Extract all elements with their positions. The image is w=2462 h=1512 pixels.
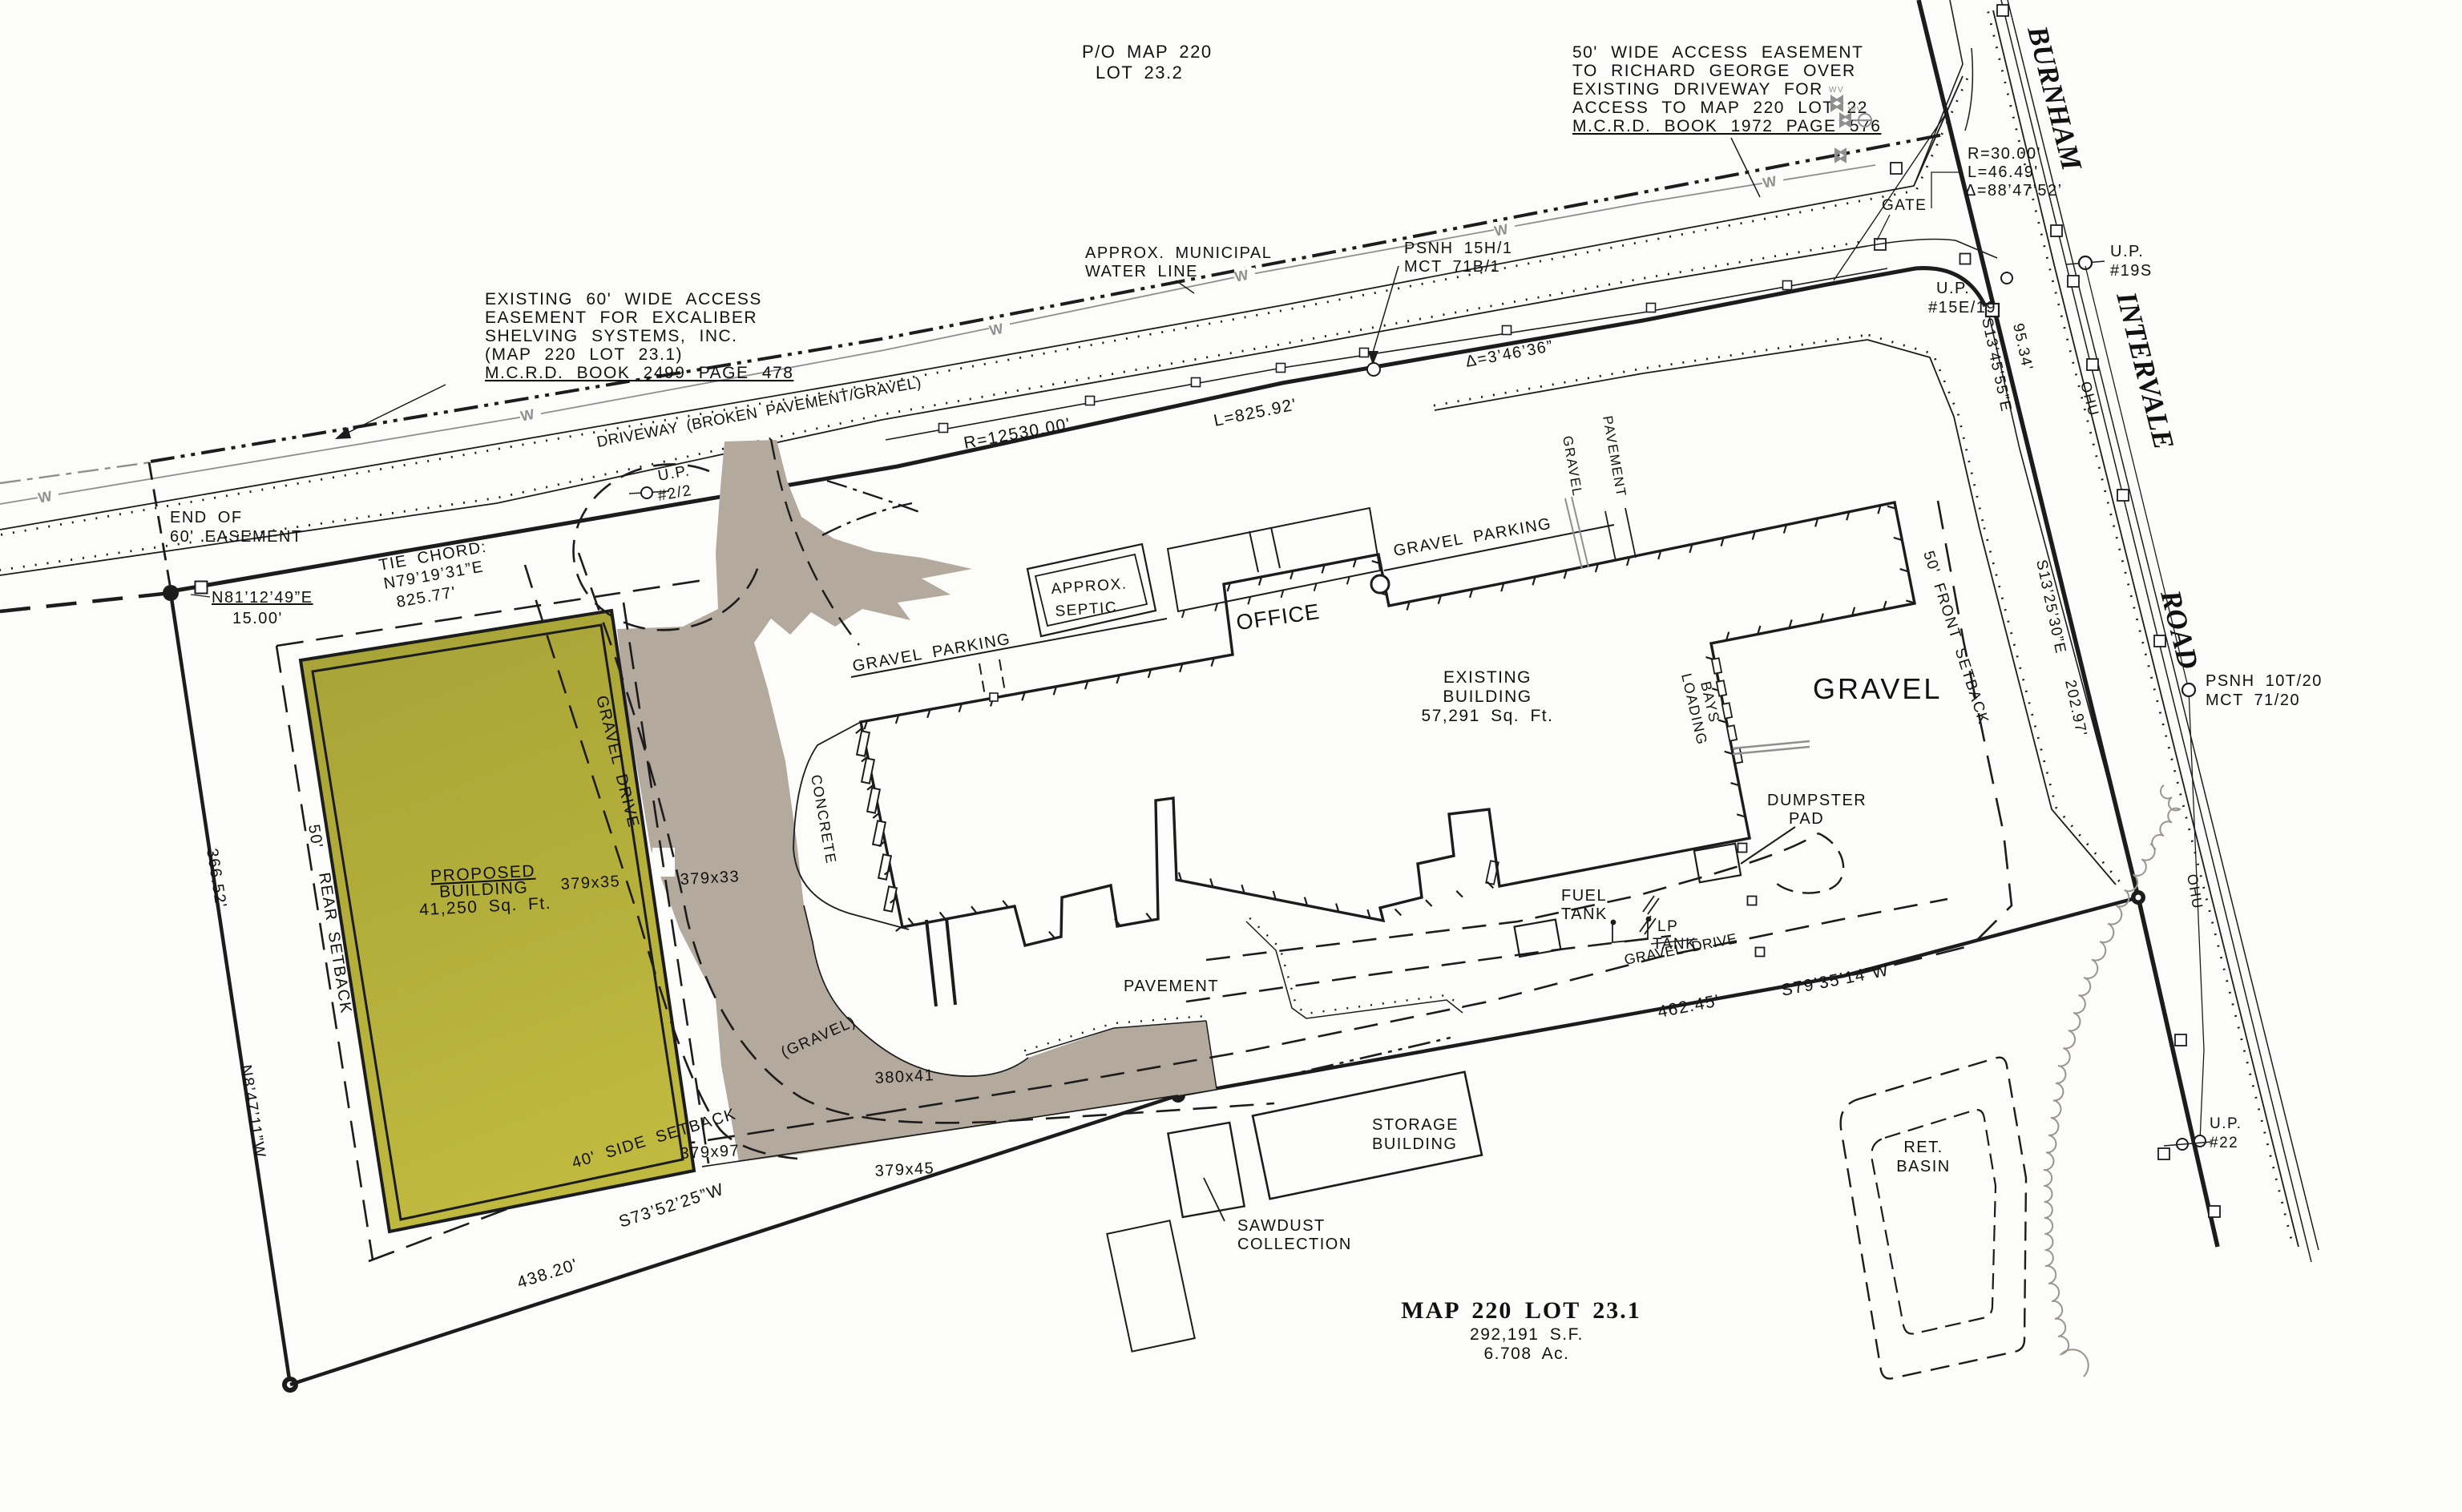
svg-text:379x97: 379x97 <box>680 1142 741 1163</box>
svg-text:W: W <box>1762 173 1779 192</box>
svg-text:MCT 71B/1: MCT 71B/1 <box>1404 258 1500 276</box>
svg-text:#22: #22 <box>2210 1135 2238 1151</box>
svg-text:379x35: 379x35 <box>560 873 621 893</box>
svg-text:FUEL: FUEL <box>1561 887 1607 905</box>
svg-text:U.P.: U.P. <box>1936 280 1970 297</box>
svg-text:PSNH 10T/20: PSNH 10T/20 <box>2206 672 2323 690</box>
svg-text:WATER LINE: WATER LINE <box>1085 263 1198 280</box>
svg-text:STORAGE: STORAGE <box>1372 1116 1459 1134</box>
svg-text:RET.: RET. <box>1903 1139 1943 1156</box>
svg-text:GATE: GATE <box>1882 197 1927 214</box>
svg-text:GRAVEL: GRAVEL <box>1813 672 1942 705</box>
svg-text:(MAP 220 LOT 23.1): (MAP 220 LOT 23.1) <box>485 345 683 364</box>
svg-text:BASIN: BASIN <box>1896 1158 1951 1175</box>
svg-text:SAWDUST: SAWDUST <box>1237 1217 1326 1235</box>
svg-text:ACCESS TO MAP 220 LOT 22: ACCESS TO MAP 220 LOT 22 <box>1572 99 1868 117</box>
svg-text:P/O MAP 220: P/O MAP 220 <box>1082 42 1213 62</box>
svg-text:WV: WV <box>1829 86 1844 95</box>
svg-text:TO RICHARD GEORGE OVER: TO RICHARD GEORGE OVER <box>1572 62 1856 80</box>
svg-text:50' WIDE ACCESS EASEMENT: 50' WIDE ACCESS EASEMENT <box>1572 43 1863 62</box>
svg-text:PSNH 15H/1: PSNH 15H/1 <box>1404 240 1513 257</box>
svg-text:380x41: 380x41 <box>874 1066 935 1087</box>
svg-text:15.00': 15.00' <box>232 610 283 627</box>
svg-text:N81’12’49”E: N81’12’49”E <box>212 589 313 607</box>
svg-text:M.C.R.D. BOOK 1972 PAGE 57: M.C.R.D. BOOK 1972 PAGE 576 <box>1572 117 1881 135</box>
svg-text:BUILDING: BUILDING <box>1372 1135 1457 1153</box>
svg-text:MAP 220 LOT 23.1: MAP 220 LOT 23.1 <box>1401 1297 1641 1324</box>
svg-text:W: W <box>988 321 1006 339</box>
svg-text:LOT 23.2: LOT 23.2 <box>1096 62 1183 83</box>
svg-text:COLLECTION: COLLECTION <box>1237 1236 1352 1253</box>
svg-text:#15E/19: #15E/19 <box>1928 299 1996 317</box>
svg-text:W: W <box>1493 221 1511 240</box>
svg-text:W: W <box>1233 267 1251 285</box>
svg-text:EASEMENT FOR EXCALIBER: EASEMENT FOR EXCALIBER <box>485 308 757 327</box>
svg-text:60' EASEMENT: 60' EASEMENT <box>170 528 303 546</box>
svg-text:APPROX. MUNICIPAL: APPROX. MUNICIPAL <box>1085 244 1272 262</box>
svg-text:LP: LP <box>1657 918 1678 935</box>
svg-text:M.C.R.D. BOOK 2499 PAGE 47: M.C.R.D. BOOK 2499 PAGE 478 <box>485 364 793 382</box>
svg-text:#19S: #19S <box>2110 262 2153 280</box>
svg-text:PAD: PAD <box>1789 810 1824 828</box>
svg-text:W: W <box>37 488 54 506</box>
svg-text:U.P.: U.P. <box>2210 1115 2242 1132</box>
svg-text:W: W <box>519 406 537 425</box>
svg-text:6.708 Ac.: 6.708 Ac. <box>1483 1345 1569 1363</box>
svg-text:EXISTING DRIVEWAY FOR: EXISTING DRIVEWAY FOR <box>1572 80 1823 99</box>
svg-text:379x45: 379x45 <box>874 1159 935 1180</box>
svg-text:DUMPSTER: DUMPSTER <box>1767 792 1867 809</box>
svg-text:SHELVING SYSTEMS, INC.: SHELVING SYSTEMS, INC. <box>485 327 738 345</box>
svg-text:292,191 S.F.: 292,191 S.F. <box>1470 1325 1584 1344</box>
svg-text:379x33: 379x33 <box>680 868 741 889</box>
svg-text:MCT 71/20: MCT 71/20 <box>2206 691 2300 709</box>
svg-text:WV: WV <box>1848 106 1863 115</box>
svg-text:EXISTING: EXISTING <box>1443 668 1532 687</box>
svg-text:L=46.49': L=46.49' <box>1968 163 2039 181</box>
svg-text:BUILDING: BUILDING <box>1443 687 1532 706</box>
svg-text:END OF: END OF <box>170 509 243 526</box>
svg-text:U.P.: U.P. <box>2110 243 2144 260</box>
svg-text:EXISTING 60' WIDE ACCESS: EXISTING 60' WIDE ACCESS <box>485 290 762 308</box>
svg-text:PAVEMENT: PAVEMENT <box>1124 978 1219 995</box>
svg-text:57,291 Sq. Ft.: 57,291 Sq. Ft. <box>1422 707 1554 725</box>
svg-text:Δ=88’47’52’: Δ=88’47’52’ <box>1965 182 2063 200</box>
svg-text:R=30.00': R=30.00' <box>1968 145 2041 163</box>
